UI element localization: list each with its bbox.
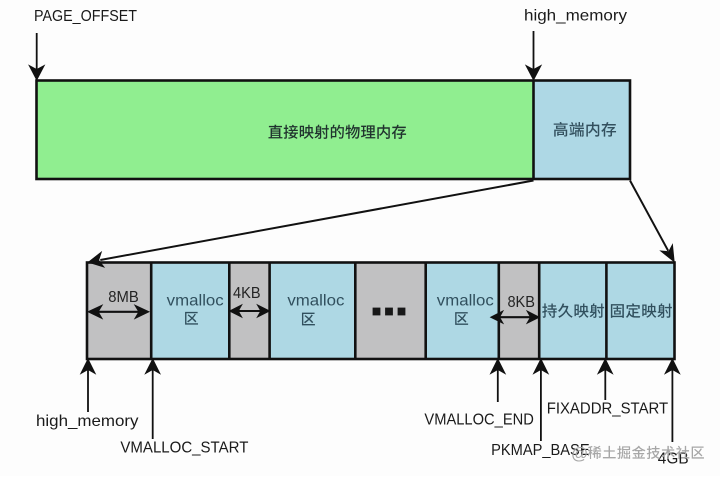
svg-text:VMALLOC_END: VMALLOC_END <box>424 411 534 428</box>
svg-text:vmalloc: vmalloc <box>167 292 224 309</box>
svg-text:high_memory: high_memory <box>524 8 627 25</box>
svg-text:@: @ <box>571 444 588 463</box>
svg-text:VMALLOC_START: VMALLOC_START <box>120 440 248 457</box>
svg-text:high_memory: high_memory <box>36 413 139 430</box>
svg-text:4GB: 4GB <box>658 451 689 468</box>
svg-text:8MB: 8MB <box>108 289 139 306</box>
svg-text:8KB: 8KB <box>507 294 535 311</box>
svg-text:vmalloc: vmalloc <box>437 292 494 309</box>
svg-text:FIXADDR_START: FIXADDR_START <box>547 401 669 418</box>
svg-text:4KB: 4KB <box>233 285 261 302</box>
svg-text:vmalloc: vmalloc <box>287 292 344 309</box>
svg-text:PAGE_OFFSET: PAGE_OFFSET <box>34 8 137 25</box>
